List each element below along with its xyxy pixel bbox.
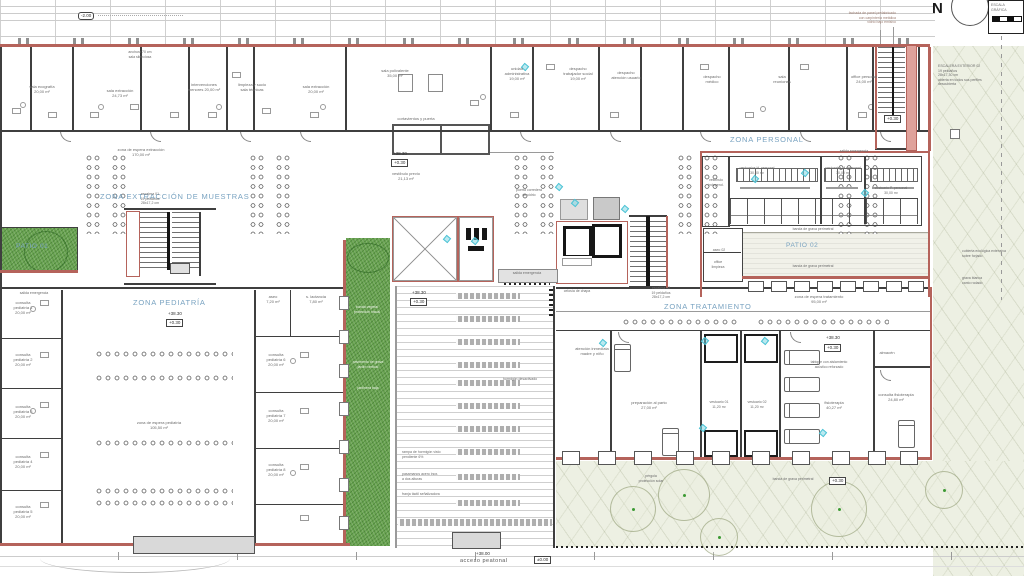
wall	[873, 366, 932, 368]
wall-red	[875, 45, 877, 149]
window	[339, 516, 349, 530]
shaft-box	[593, 197, 620, 220]
wall	[553, 286, 555, 548]
wall-red	[930, 287, 932, 460]
wall	[0, 227, 78, 228]
label-consulta-ped-8: consulta pediatría 8 20,00 m²	[258, 462, 294, 478]
label-salida-emergencia-oeste: salida emergencia	[10, 291, 58, 296]
zone-label-pediatria: ZONA PEDIATRÍA	[133, 298, 206, 307]
step-band	[456, 316, 520, 322]
door-arc	[880, 370, 891, 381]
label-grava-1: banda de grava perimetral	[782, 227, 844, 232]
door-arc	[300, 131, 311, 142]
step-band	[456, 474, 520, 480]
graphic-scale-title: ESCALA GRÁFICA	[991, 3, 1021, 12]
wc-cubicle	[704, 334, 738, 363]
desk	[610, 112, 619, 118]
label-jardinera: jardinera baja	[348, 386, 388, 391]
desk	[510, 112, 519, 118]
door-arc	[60, 131, 71, 142]
dimension-line	[0, 36, 935, 37]
desk	[745, 112, 754, 118]
treatment-bed	[784, 429, 820, 444]
wall	[700, 331, 702, 458]
desk	[12, 108, 21, 114]
label-office-personal: office personal 24,00 m²	[842, 74, 886, 84]
label-fisioterapia: fisioterapia 40,27 m²	[814, 400, 854, 410]
label-atencion-inmediata: atención inmediata madre y niño	[568, 346, 616, 356]
label-escalera-02: escalera 02 19 peldaños 28x17,2 cm	[642, 286, 680, 300]
desk	[300, 515, 309, 521]
wall	[872, 47, 874, 130]
label-espera-extraccion: zona de espera extracción 170,00 m²	[108, 147, 174, 157]
planter	[598, 451, 616, 465]
label-grava-2: banda de grava perimetral	[782, 264, 844, 269]
label-tabique: tabique con aislamiento acústico reforza…	[798, 360, 860, 369]
step-band	[456, 339, 520, 345]
landscape-marker	[950, 129, 960, 139]
level-text: +38.30	[393, 151, 407, 156]
wall-east	[928, 47, 931, 151]
chair	[320, 104, 326, 110]
stair-stringer	[167, 212, 170, 270]
wall	[345, 47, 347, 130]
wall	[0, 438, 61, 439]
label-despacho-medico: despacho médico	[694, 74, 730, 84]
chair	[760, 106, 766, 112]
label-intervenciones: intervenciones menores 20,00 m²	[182, 82, 226, 92]
wall-red-green-strip	[343, 240, 346, 545]
waiting-chairs-row	[95, 499, 233, 507]
chair	[216, 104, 222, 110]
waiting-chairs-row	[95, 487, 233, 495]
step-band-wide	[398, 519, 552, 526]
vestibule-room	[702, 156, 730, 227]
label-grava-blanca: grava blanca canto rodado	[962, 276, 1012, 285]
door-arc	[880, 131, 891, 142]
window	[339, 330, 349, 344]
zone-label-tratamiento: ZONA TRATAMIENTO	[664, 302, 752, 311]
planter	[817, 281, 833, 292]
wall-red	[0, 270, 78, 273]
label-cortavientos: cortavientos y puerta	[388, 116, 444, 121]
wall	[72, 47, 74, 130]
north-circle	[951, 0, 989, 26]
label-mostrador: anchura 70 cm sala silenciosa	[118, 50, 162, 59]
facade-line-north	[0, 44, 930, 47]
desk	[800, 64, 809, 70]
patio-02-area	[742, 232, 930, 278]
desk	[262, 108, 271, 114]
planter	[794, 281, 810, 292]
label-consulta-ped-5: consulta pediatría 5 20,00 m²	[6, 504, 40, 520]
wall	[77, 228, 78, 272]
planter	[868, 451, 886, 465]
label-rampa: rampa de hormigón visto pendiente 6%	[402, 450, 458, 459]
door-arc	[150, 131, 161, 142]
stair-stringer	[892, 47, 894, 115]
desk	[858, 112, 867, 118]
wall	[124, 208, 216, 210]
door-arc	[618, 332, 629, 343]
planter	[908, 281, 924, 292]
service-rooms	[703, 228, 743, 282]
planter	[840, 281, 856, 292]
label-grava-jardin: pavimento de grava jardín vertical	[347, 360, 389, 369]
label-vestuario-p: vestuario P. personal 30,00 m²	[868, 186, 914, 195]
fixture	[468, 246, 484, 251]
desk	[40, 300, 49, 306]
shower-cubicles	[730, 198, 918, 224]
window	[339, 402, 349, 416]
chair	[20, 102, 26, 108]
wall-red	[700, 151, 702, 297]
level-badge-ground: ±0.00	[534, 556, 551, 564]
desk	[130, 104, 139, 110]
step-band	[456, 426, 520, 432]
label-sala-ecografia: sala ecografía 20,00 m²	[22, 84, 62, 94]
label-sala-polivalente: sala polivalente 35,00 m²	[372, 68, 418, 78]
fixture	[482, 228, 487, 240]
wall	[199, 212, 201, 276]
label-hormigon: hormigón desactivado	[492, 377, 548, 382]
tree	[700, 518, 738, 556]
wall	[0, 490, 61, 491]
planter	[832, 451, 850, 465]
label-despacho-social: despacho trabajador social 19,00 m²	[556, 66, 600, 82]
label-consulta-ped-4: consulta pediatría 4 20,00 m²	[6, 454, 40, 470]
wall	[254, 392, 345, 393]
exterior-stair-shaft	[906, 45, 917, 151]
wall	[0, 287, 345, 289]
wall	[740, 331, 742, 458]
desk	[48, 112, 57, 118]
vestibule	[440, 124, 490, 155]
wall-red	[666, 216, 668, 288]
wall-light	[556, 311, 932, 312]
level-badge: +0.30	[391, 159, 408, 167]
wall	[0, 338, 61, 339]
dimension-line	[0, 13, 935, 14]
label-sala-extraccion-1: sala extracción 24,73 m²	[96, 88, 144, 98]
leader-line	[98, 15, 183, 17]
stair-stringer	[646, 216, 650, 286]
waiting-chairs-row	[95, 374, 233, 382]
label-celosia: celosía de chapa	[556, 289, 598, 294]
corridor-chairs	[622, 318, 740, 326]
desk	[700, 64, 709, 70]
door-arc	[610, 131, 621, 142]
desk	[470, 100, 479, 106]
tree-trunk-icon	[943, 489, 946, 492]
wall	[846, 47, 848, 130]
north-arrow: N	[932, 0, 943, 17]
stair-01-treads	[140, 212, 167, 268]
label-unidad-admin: unidad administrativa 19,00 m²	[498, 66, 536, 82]
label-vestuarios-h: vestuarios H. personal 30,00 m²	[732, 166, 782, 175]
level-badge: +0.30	[824, 344, 841, 352]
desk	[232, 72, 241, 78]
wall	[0, 130, 930, 132]
label-consulta-fisio: consulta fisioterapia 24,80 m²	[872, 392, 920, 402]
desk	[40, 452, 49, 458]
label-aseo-02: aseo 02	[706, 248, 732, 253]
wall-west	[0, 47, 2, 544]
wall	[254, 290, 256, 545]
zone-label-extraccion: ZONA EXTRACCIÓN DE MUESTRAS	[100, 192, 250, 201]
label-salida-emergencia-centro: salida emergencia	[500, 271, 554, 276]
wall	[532, 47, 534, 130]
desk	[300, 464, 309, 470]
label-sala-extraccion-2: sala extracción 20,00 m²	[294, 84, 338, 94]
zone-label-patio-02: PATIO 02	[786, 242, 818, 249]
desk	[90, 112, 99, 118]
planter	[748, 281, 764, 292]
label-escalera-01: escalera 01 19 peldaños 28x17,2 cm	[130, 192, 170, 206]
elevator	[592, 224, 622, 258]
label-fachada: fachada de panel prefabricado con carpin…	[806, 11, 896, 25]
wall	[254, 504, 345, 505]
elevator	[563, 226, 592, 256]
level-text: +38.30	[412, 290, 426, 295]
wall	[290, 290, 291, 336]
floor-plan-canvas: N ESCALA GRÁFICA ZONA EXTRACCIÓN DE MUES…	[0, 0, 1024, 576]
technical-room	[392, 216, 458, 282]
tree-trunk-icon	[683, 494, 686, 497]
door-arc	[790, 332, 801, 343]
desk	[40, 352, 49, 358]
wall	[598, 47, 600, 130]
label-franja-tactil: franja táctil señalizadora	[402, 492, 462, 497]
wall	[728, 47, 730, 130]
meeting-table	[428, 74, 443, 92]
label-preparacion-parto: preparación al parto 27,00 m²	[622, 400, 676, 410]
corridor-chairs	[757, 318, 889, 326]
revision-mark-icon	[819, 429, 827, 437]
label-cubierta-eco: cubierta ecológica extensiva sobre forja…	[962, 249, 1020, 258]
wall-red	[700, 151, 930, 153]
treatment-bed	[898, 420, 915, 448]
label-lactancia: s. lactancia 7,80 m²	[296, 294, 336, 304]
step-band	[456, 500, 520, 506]
label-escalera-ext: ESCALERA EXTERIOR 02 19 peldaños 28x17,3…	[938, 64, 998, 87]
label-vestibulo-indep: vestíbulo independ.	[702, 178, 730, 187]
chair	[480, 94, 486, 100]
label-consulta-ped-6: consulta pediatría 6 20,00 m²	[258, 352, 294, 368]
lockers	[870, 168, 918, 182]
zone-label-patio-01: PATIO 01	[16, 243, 48, 250]
level-badge: +0.30	[884, 115, 901, 123]
wall	[918, 47, 920, 130]
ramp-field	[396, 286, 553, 548]
dimension-line	[0, 20, 935, 21]
door-arc	[700, 131, 711, 142]
wall	[640, 47, 642, 130]
door-arc	[240, 131, 251, 142]
waiting-chairs-row	[95, 439, 233, 447]
planter	[792, 451, 810, 465]
tree	[610, 486, 656, 532]
tree-trunk-icon	[718, 536, 721, 539]
planter	[562, 451, 580, 465]
planter	[771, 281, 787, 292]
zone-label-personal: ZONA PERSONAL	[730, 135, 804, 144]
treatment-bed	[614, 344, 631, 372]
planter	[886, 281, 902, 292]
planter	[863, 281, 879, 292]
label-vestuario-01: vestuario 01 11,20 m²	[702, 400, 736, 409]
label-banda-vegetal: banda vegetal protección visual	[346, 305, 388, 314]
label-consulta-ped-1: consulta pediatría 1 20,00 m²	[6, 300, 40, 316]
desk	[170, 112, 179, 118]
level-badge-basement: -2.00	[78, 12, 94, 20]
wall-light	[395, 286, 397, 548]
dimension-line	[0, 6, 935, 7]
label-almacen: almacén	[872, 350, 902, 355]
waiting-chairs-row	[95, 350, 233, 358]
desk	[300, 352, 309, 358]
waiting-chairs	[248, 154, 300, 234]
planter	[900, 451, 918, 465]
step-band	[456, 362, 520, 368]
step-band	[456, 403, 520, 409]
window	[339, 440, 349, 454]
fixture	[466, 228, 471, 240]
label-salida-emergencia-ne: salida emergencia	[830, 149, 878, 154]
desk	[40, 402, 49, 408]
level-badge: +0.30	[410, 298, 427, 306]
wall	[779, 331, 781, 458]
level-text: +38.30	[168, 311, 182, 316]
tree	[811, 481, 867, 537]
label-vestibulo-previo: vestíbulo previo 21,13 m²	[384, 171, 428, 181]
label-office-limpieza: office limpieza	[704, 260, 732, 269]
wall	[556, 330, 932, 331]
stair-landing	[170, 263, 190, 274]
exit-threshold-vertical	[549, 289, 553, 317]
vertical-garden	[346, 238, 390, 546]
planter	[712, 451, 730, 465]
desk	[546, 64, 555, 70]
window	[339, 478, 349, 492]
entrance-canopy-pediatria	[133, 536, 255, 554]
label-espera-tratamiento: zona de espera tratamiento 95,00 m²	[784, 294, 854, 304]
planter	[634, 451, 652, 465]
tree-trunk-icon	[838, 508, 841, 511]
wall	[788, 47, 790, 130]
door-arc	[520, 131, 531, 142]
access-label-pedestrian: acceso peatonal	[460, 558, 508, 564]
label-pergola: pérgola protección solar	[628, 474, 674, 483]
desk	[40, 502, 49, 508]
label-limpieza-sucio: limpieza y sucio sala técnicas	[228, 82, 276, 92]
tree	[925, 471, 963, 509]
step-band	[456, 293, 520, 299]
planter	[676, 451, 694, 465]
label-espera-pediatria: zona de espera pediatría 105,50 m²	[124, 420, 194, 430]
wall	[61, 290, 63, 543]
revision-mark-icon	[621, 205, 629, 213]
stair-01-treads	[172, 212, 199, 268]
stair-shaft	[126, 211, 140, 277]
wall	[254, 448, 345, 449]
wall	[254, 336, 345, 337]
treatment-bed	[784, 377, 820, 392]
label-sala-reuniones: sala reuniones	[764, 74, 800, 84]
label-vestuarios-m: vestuarios M. personal 30,00 m²	[820, 166, 866, 175]
label-aseo-pediatria: aseo 7,20 m²	[260, 294, 286, 304]
wc-cubicle	[744, 334, 778, 363]
garden-tree	[347, 243, 389, 273]
label-vestuario-02: vestuario 02 11,20 m²	[740, 400, 774, 409]
level-badge: +0.30	[166, 319, 183, 327]
tree-trunk-icon	[632, 508, 635, 511]
scale-bar	[992, 16, 1022, 22]
plot-boundary-dotted	[556, 546, 1024, 548]
chair	[98, 104, 104, 110]
label-grava-3: banda de grava perimetral	[762, 477, 824, 482]
desk	[310, 112, 319, 118]
wall	[490, 47, 492, 130]
entrance-canopy-main	[452, 532, 501, 549]
label-consulta-ped-7: consulta pediatría 7 20,00 m²	[258, 408, 294, 424]
patio-tree	[24, 231, 68, 273]
level-badge: +0.30	[829, 477, 846, 485]
desk	[300, 408, 309, 414]
label-consulta-ped-3: consulta pediatría 3 20,00 m²	[6, 404, 40, 420]
wall	[0, 388, 61, 389]
label-pasamanos: pasamanos acero inox. a dos alturas	[402, 472, 458, 481]
facade-line-patio	[742, 276, 930, 279]
wall	[124, 283, 216, 285]
level-text: +38.00	[476, 551, 490, 556]
desk	[208, 112, 217, 118]
label-consulta-ped-2: consulta pediatría 2 20,00 m²	[6, 352, 40, 368]
wall	[682, 47, 684, 130]
level-text: +38.30	[826, 335, 840, 340]
label-despacho-usuario: despacho atención usuario	[604, 70, 648, 80]
label-puerta-corredera: puerta corredera de vidrio	[506, 188, 552, 197]
planter	[752, 451, 770, 465]
step-band	[456, 449, 520, 455]
